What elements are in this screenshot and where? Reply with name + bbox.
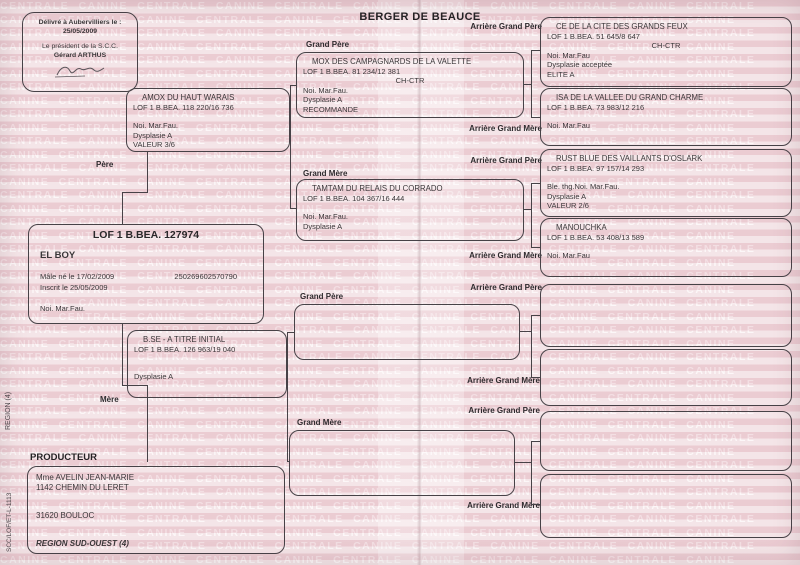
- agp1-lof: LOF 1 B.BEA. 51 645/8 647: [547, 32, 785, 42]
- pere-color: Noi. Mar.Fau.: [133, 121, 283, 131]
- agp2-valeur: VALEUR 2/6: [547, 201, 785, 211]
- connector-line: [531, 441, 532, 506]
- producteur-name: Mme AVELIN JEAN-MARIE: [36, 473, 276, 483]
- pere-box: AMOX DU HAUT WARAIS LOF 1 B.BEA. 118 220…: [126, 88, 290, 152]
- producteur-region: REGION SUD-OUEST (4): [36, 539, 276, 549]
- stamp-issued-line: Délivré à Aubervilliers le :: [23, 19, 137, 28]
- pere-dysplasie: Dysplasie A: [133, 131, 283, 141]
- connector-line: [531, 315, 532, 378]
- agm2-name: MANOUCHKA: [547, 223, 785, 233]
- gpp-mention: RECOMMANDE: [303, 105, 517, 115]
- connector-line: [520, 331, 531, 332]
- connector-line: [290, 85, 291, 209]
- connector-line: [531, 377, 540, 378]
- arriere-grand-mere-1-box: ISA DE LA VALLEE DU GRAND CHARME LOF 1 B…: [540, 88, 792, 146]
- label-mere: Mère: [100, 395, 119, 404]
- pere-valeur: VALEUR 3/6: [133, 140, 283, 150]
- subject-registered: Inscrit le 25/05/2009: [40, 283, 263, 293]
- side-region-label: REGION (4): [5, 392, 12, 430]
- grand-pere-maternel-box-empty: [294, 304, 520, 360]
- gmp-name: TAMTAM DU RELAIS DU CORRADO: [303, 184, 517, 194]
- side-form-ref: SCC/LOF/ET-L-1113: [6, 493, 13, 552]
- subject-chip: 250269602570790: [174, 272, 237, 282]
- connector-line: [290, 85, 296, 86]
- label-arriere-grand-pere-3: Arrière Grand Père: [390, 283, 542, 292]
- agp1-mention: ELITE A: [547, 70, 785, 80]
- pere-name: AMOX DU HAUT WARAIS: [133, 93, 283, 103]
- agm1-lof: LOF 1 B.BEA. 73 983/12 216: [547, 103, 785, 113]
- label-arriere-grand-mere-4: Arrière Grand Mère: [388, 501, 540, 510]
- arriere-grand-pere-1-box: CE DE LA CITE DES GRANDS FEUX LOF 1 B.BE…: [540, 17, 792, 87]
- agm1-name: ISA DE LA VALLEE DU GRAND CHARME: [547, 93, 785, 103]
- connector-line: [287, 461, 290, 462]
- connector-line: [147, 152, 148, 193]
- connector-line: [290, 208, 296, 209]
- connector-line: [122, 192, 123, 225]
- gpp-color: Noi. Mar.Fau.: [303, 86, 517, 96]
- mere-dysplasie: Dysplasie A: [134, 372, 280, 382]
- connector-line: [531, 441, 540, 442]
- label-arriere-grand-mere-1: Arrière Grand Mère: [390, 124, 542, 133]
- connector-line: [531, 183, 532, 248]
- mere-lof: LOF 1 B.BEA. 126 963/19 040: [134, 345, 280, 355]
- agm1-color: Noi. Mar.Fau: [547, 121, 785, 131]
- agp2-dysplasie: Dysplasie A: [547, 192, 785, 202]
- producteur-heading: PRODUCTEUR: [30, 452, 97, 463]
- subject-color: Noi. Mar.Fau.: [40, 304, 263, 314]
- pere-lof: LOF 1 B.BEA. 118 220/16 736: [133, 103, 283, 113]
- connector-line: [122, 192, 148, 193]
- arriere-grand-pere-2-box: RUST BLUE DES VAILLANTS D'OSLARK LOF 1 B…: [540, 149, 792, 217]
- producteur-city: 31620 BOULOC: [36, 511, 276, 521]
- label-pere: Père: [96, 160, 113, 169]
- signature: [51, 62, 109, 80]
- connector-line: [287, 332, 288, 462]
- producteur-box: Mme AVELIN JEAN-MARIE 1142 CHEMIN DU LER…: [27, 466, 285, 554]
- agm2-lof: LOF 1 B.BEA. 53 408/13 589: [547, 233, 785, 243]
- agm2-color: Noi. Mar.Fau: [547, 251, 785, 261]
- arriere-grand-mere-3-box-empty: [540, 349, 792, 406]
- connector-line: [531, 50, 532, 118]
- grand-mere-maternelle-box-empty: [289, 430, 515, 496]
- label-grand-pere-2: Grand Père: [300, 292, 343, 301]
- stamp-issued-date: 25/05/2009: [23, 28, 137, 37]
- connector-line: [122, 324, 123, 386]
- connector-line: [147, 385, 148, 462]
- pedigree-certificate: CENTRALE CANINE CENTRALE CANINE CENTRALE…: [0, 0, 800, 565]
- gpp-titre: CH-CTR: [303, 76, 517, 86]
- gpp-lof: LOF 1 B.BEA. 81 234/12 381: [303, 67, 517, 77]
- gmp-color: Noi. Mar.Fau.: [303, 212, 517, 222]
- producteur-address: 1142 CHEMIN DU LERET: [36, 483, 276, 493]
- subject-lof: LOF 1 B.BEA. 127974: [29, 231, 263, 241]
- agp1-color: Noi. Mar.Fau: [547, 51, 785, 61]
- label-grand-pere-1: Grand Père: [306, 40, 349, 49]
- agp1-titre: CH-CTR: [547, 41, 785, 51]
- agp1-dysplasie: Dysplasie acceptée: [547, 60, 785, 70]
- gmp-lof: LOF 1 B.BEA. 104 367/16 444: [303, 194, 517, 204]
- connector-line: [531, 183, 540, 184]
- label-grand-mere-2: Grand Mère: [297, 418, 341, 427]
- label-arriere-grand-mere-2: Arrière Grand Mère: [390, 251, 542, 260]
- arriere-grand-mere-4-box-empty: [540, 474, 792, 538]
- label-arriere-grand-mere-3: Arrière Grand Mère: [388, 376, 540, 385]
- subject-name: EL BOY: [40, 251, 263, 261]
- label-arriere-grand-pere-2: Arrière Grand Père: [390, 156, 542, 165]
- arriere-grand-mere-2-box: MANOUCHKA LOF 1 B.BEA. 53 408/13 589 Noi…: [540, 218, 792, 277]
- connector-line: [531, 315, 540, 316]
- connector-line: [531, 504, 540, 505]
- gmp-dysplasie: Dysplasie A: [303, 222, 517, 232]
- arriere-grand-pere-3-box-empty: [540, 284, 792, 347]
- agp1-name: CE DE LA CITE DES GRANDS FEUX: [547, 22, 785, 32]
- stamp-president-title: Le président de la S.C.C.: [23, 43, 137, 52]
- stamp-president-name: Gérard ARTHUS: [23, 52, 137, 61]
- connector-line: [531, 247, 540, 248]
- gpp-name: MOX DES CAMPAGNARDS DE LA VALETTE: [303, 57, 517, 67]
- grand-mere-paternelle-box: TAMTAM DU RELAIS DU CORRADO LOF 1 B.BEA.…: [296, 179, 524, 241]
- gpp-dysplasie: Dysplasie A: [303, 95, 517, 105]
- mere-box: B.SE - A TITRE INITIAL LOF 1 B.BEA. 126 …: [127, 330, 287, 398]
- connector-line: [122, 385, 148, 386]
- subject-box: LOF 1 B.BEA. 127974 EL BOY Mâle né le 17…: [28, 224, 264, 324]
- connector-line: [531, 50, 540, 51]
- label-grand-mere-1: Grand Mère: [303, 169, 347, 178]
- connector-line: [515, 462, 531, 463]
- label-arriere-grand-pere-1: Arrière Grand Père: [390, 22, 542, 31]
- connector-line: [287, 332, 294, 333]
- agp2-color: Ble. thg.Noi. Mar.Fau.: [547, 182, 785, 192]
- mere-name: B.SE - A TITRE INITIAL: [134, 335, 280, 345]
- issuing-stamp: Délivré à Aubervilliers le : 25/05/2009 …: [22, 12, 138, 92]
- agp2-lof: LOF 1 B.BEA. 97 157/14 293: [547, 164, 785, 174]
- agp2-name: RUST BLUE DES VAILLANTS D'OSLARK: [547, 154, 785, 164]
- subject-sex-birth: Mâle né le 17/02/2009: [40, 272, 114, 282]
- arriere-grand-pere-4-box-empty: [540, 411, 792, 471]
- grand-pere-paternel-box: MOX DES CAMPAGNARDS DE LA VALETTE LOF 1 …: [296, 52, 524, 118]
- label-arriere-grand-pere-4: Arrière Grand Père: [388, 406, 540, 415]
- connector-line: [531, 117, 540, 118]
